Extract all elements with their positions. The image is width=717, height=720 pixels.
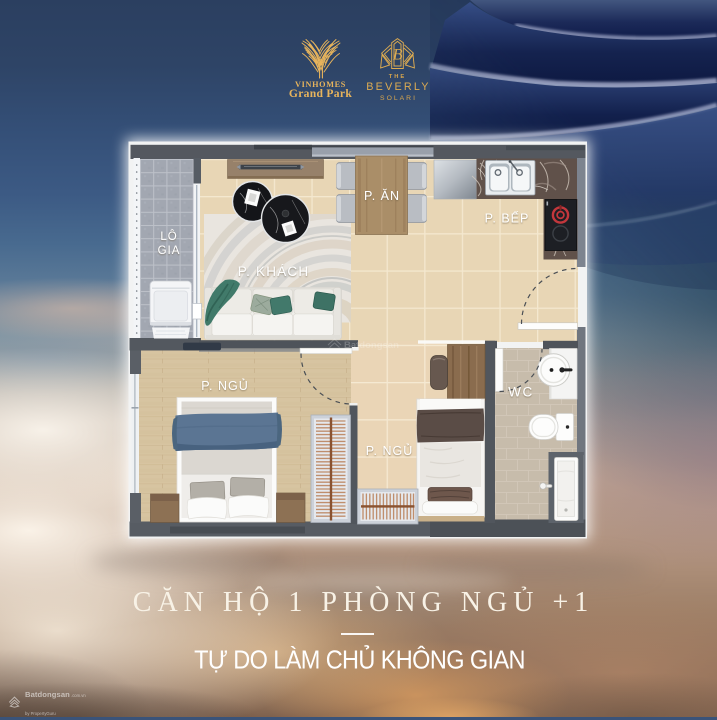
svg-text:LÔ: LÔ — [160, 230, 177, 243]
svg-text:P. ĂN: P. ĂN — [364, 188, 400, 203]
svg-text:P. NGỦ: P. NGỦ — [201, 378, 248, 393]
svg-text:Batdongsan: Batdongsan — [344, 340, 399, 351]
svg-text:P. NGỦ: P. NGỦ — [366, 443, 413, 458]
svg-text:GIA: GIA — [158, 245, 181, 257]
svg-text:P. BẾP: P. BẾP — [485, 211, 530, 226]
svg-text:P. KHÁCH: P. KHÁCH — [238, 264, 310, 279]
svg-text:WC: WC — [508, 385, 534, 400]
